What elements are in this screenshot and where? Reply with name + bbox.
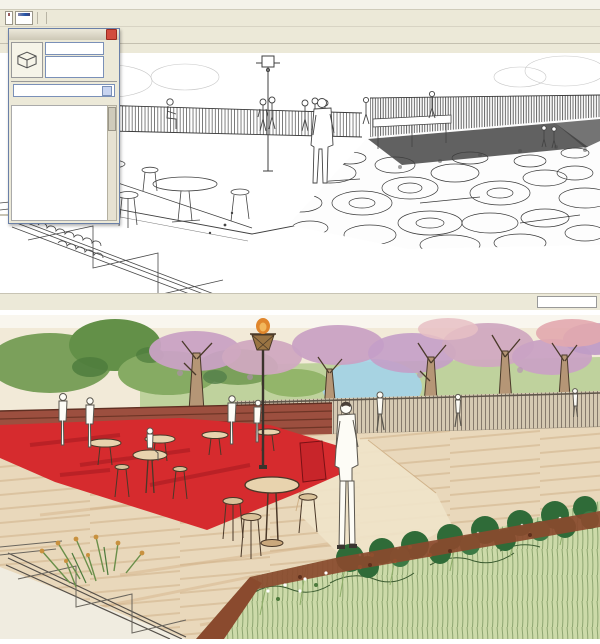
walking-figure-sketch [363,97,369,124]
style-preview-thumbnail [11,42,43,78]
shadow-month-slider[interactable] [5,11,13,25]
styles-dialog-titlebar[interactable] [9,29,119,40]
toolbar-separator [46,12,47,24]
style-name-input[interactable] [45,42,104,55]
sketchup-window [0,0,600,309]
close-icon[interactable] [106,29,117,40]
style-grid-scrollbar[interactable] [107,105,117,221]
month-slider-bar[interactable] [8,13,10,16]
menu-bar [0,0,600,10]
style-fields [45,42,104,78]
style-side-buttons [106,42,117,78]
measurements-input[interactable] [537,296,597,308]
style-grid [11,105,109,221]
status-bar [0,293,600,310]
skinx-toolbar [51,18,55,19]
rendering-art [0,315,600,639]
time-slider-bar[interactable] [18,13,30,16]
toolbar-separator [37,12,38,24]
marker-rendering [0,315,600,639]
toolbar-top [0,10,600,27]
styles-dialog-nav [9,82,119,99]
screenshot-root: { "window": { "menu": { "items": ["File"… [0,0,600,639]
red-planter-cube [300,441,326,482]
main-figure-sketch [311,99,334,184]
shadow-time-slider[interactable] [15,11,33,25]
scrollbar-thumb[interactable] [108,107,116,131]
chevron-down-icon[interactable] [102,86,112,96]
styles-dialog-header [9,40,119,80]
styles-dialog [8,28,120,224]
style-description-input[interactable] [45,56,104,78]
style-collection-dropdown[interactable] [13,84,115,97]
